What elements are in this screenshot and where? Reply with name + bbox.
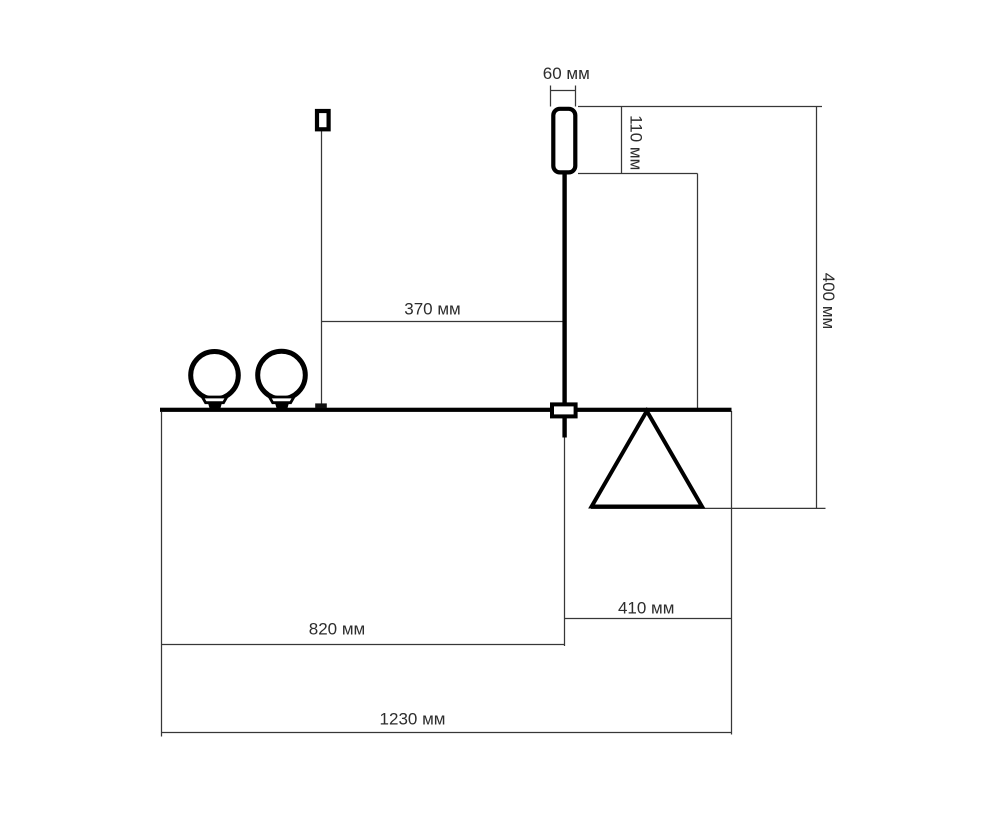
svg-text:110 мм: 110 мм xyxy=(627,115,646,170)
svg-text:820 мм: 820 мм xyxy=(309,620,365,639)
svg-text:1230 мм: 1230 мм xyxy=(380,710,446,729)
svg-text:410 мм: 410 мм xyxy=(618,599,674,618)
svg-text:400 мм: 400 мм xyxy=(819,273,838,329)
svg-text:60 мм: 60 мм xyxy=(543,64,590,83)
svg-text:370 мм: 370 мм xyxy=(404,299,460,318)
